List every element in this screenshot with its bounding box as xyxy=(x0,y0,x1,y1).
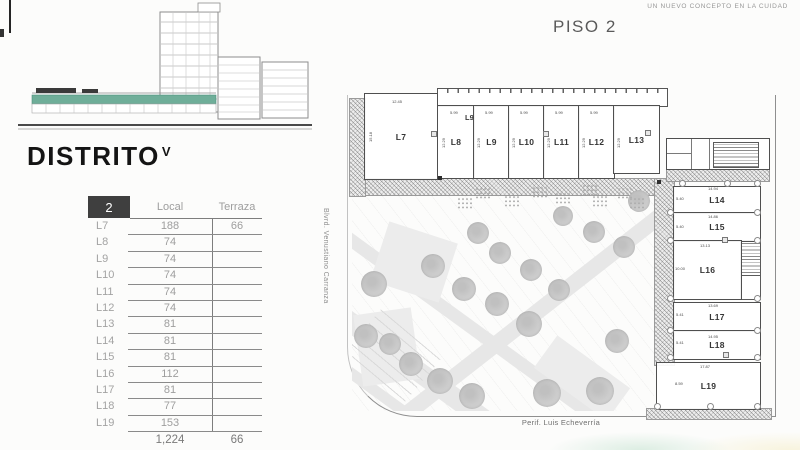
dim-label: 14.95 xyxy=(708,334,718,339)
dim-label: 5.99 xyxy=(590,110,598,115)
row-label: L19 xyxy=(96,416,128,431)
row-local: 74 xyxy=(128,235,212,250)
tree xyxy=(467,222,489,244)
table-rows: L718866L874L974L1074L1174L1274L1381L1481… xyxy=(88,219,262,432)
row-label: L14 xyxy=(96,334,128,349)
fixture-box xyxy=(723,352,729,358)
table-row: L16112 xyxy=(88,367,262,383)
column-marker xyxy=(667,354,674,361)
dim-label: 12.29 xyxy=(511,138,516,148)
tree xyxy=(605,329,629,353)
row-local: 74 xyxy=(128,301,212,316)
walkway xyxy=(364,178,658,196)
dim-label: 12.29 xyxy=(616,138,621,148)
dim-label: 5.99 xyxy=(555,110,563,115)
floor-title: PISO 2 xyxy=(553,17,617,37)
row-label: L9 xyxy=(96,252,128,267)
cafe-table-cluster xyxy=(504,195,520,208)
brand-logo: DISTRITOV xyxy=(27,141,171,172)
row-label: L7 xyxy=(96,219,128,234)
cafe-table-cluster xyxy=(457,197,473,210)
dim-label: 8.59 xyxy=(675,381,683,386)
table-row: L1174 xyxy=(88,285,262,301)
dim-label: 15.18 xyxy=(368,132,373,142)
tree xyxy=(427,368,453,394)
column-marker xyxy=(679,180,686,187)
total-terraza: 66 xyxy=(212,434,262,446)
table-row: L1074 xyxy=(88,268,262,284)
building-elevation xyxy=(0,0,320,135)
dim-label: 5.99 xyxy=(485,110,493,115)
fixture-box xyxy=(543,131,549,137)
dim-label: 5.40 xyxy=(676,196,684,201)
row-local: 81 xyxy=(128,383,212,398)
column-marker xyxy=(667,209,674,216)
column-block xyxy=(657,180,661,184)
tree xyxy=(586,377,614,405)
tree xyxy=(613,236,635,258)
street-label-left: Blvrd. Venustiano Carranza xyxy=(322,208,329,304)
room-L7: L7 xyxy=(364,93,438,180)
stairs xyxy=(740,240,761,277)
dim-label: 12.29 xyxy=(441,138,446,148)
tree xyxy=(516,311,542,337)
stairs xyxy=(713,142,759,168)
row-local: 81 xyxy=(128,334,212,349)
tree xyxy=(553,206,573,226)
tree xyxy=(548,279,570,301)
column-marker xyxy=(724,180,731,187)
walkway xyxy=(654,178,675,366)
tree xyxy=(520,259,542,281)
accent-band xyxy=(32,95,216,104)
row-local: 74 xyxy=(128,252,212,267)
core-wall xyxy=(667,153,691,154)
service-core xyxy=(666,138,770,170)
column-marker xyxy=(707,403,714,410)
core-wall xyxy=(709,139,710,169)
column-marker xyxy=(654,403,661,410)
row-local: 74 xyxy=(128,285,212,300)
table-row: L19153 xyxy=(88,416,262,432)
row-label: L17 xyxy=(96,383,128,398)
fixture-box xyxy=(722,237,728,243)
row-local: 188 xyxy=(128,219,212,234)
row-local: 81 xyxy=(128,350,212,365)
tree xyxy=(399,352,423,376)
table-row: L974 xyxy=(88,252,262,268)
dim-label: 13.13 xyxy=(700,243,710,248)
row-local: 153 xyxy=(128,416,212,431)
column-marker xyxy=(754,209,761,216)
column-marker xyxy=(667,295,674,302)
table-row: L1877 xyxy=(88,399,262,415)
dim-label: 17.87 xyxy=(700,364,710,369)
table-row: L874 xyxy=(88,235,262,251)
tagline: UN NUEVO CONCEPTO EN LA CUIDAD xyxy=(647,3,788,10)
table-row: L1381 xyxy=(88,317,262,333)
tree xyxy=(379,333,401,355)
dim-label: 14.94 xyxy=(708,186,718,191)
row-local: 77 xyxy=(128,399,212,414)
column-marker xyxy=(667,237,674,244)
tree xyxy=(354,324,378,348)
column-block xyxy=(438,176,442,180)
cafe-table-cluster xyxy=(617,187,633,200)
column-header-terraza: Terraza xyxy=(212,199,262,215)
fixture-box xyxy=(645,130,651,136)
column-marker xyxy=(754,354,761,361)
dim-label: 12.45 xyxy=(392,99,402,104)
tree xyxy=(489,242,511,264)
column-marker xyxy=(754,237,761,244)
dim-label: 5.41 xyxy=(676,312,684,317)
row-local: 74 xyxy=(128,268,212,283)
row-label: L13 xyxy=(96,317,128,332)
tree xyxy=(361,271,387,297)
street-label-bottom: Perif. Luis Echeverría xyxy=(455,418,667,427)
tree xyxy=(485,292,509,316)
row-label: L16 xyxy=(96,367,128,382)
row-terraza: 66 xyxy=(212,219,262,234)
row-label: L18 xyxy=(96,399,128,414)
tree xyxy=(459,383,485,409)
tree xyxy=(421,254,445,278)
cafe-table-cluster xyxy=(555,192,571,205)
tree xyxy=(452,277,476,301)
dim-label: 10.00 xyxy=(675,266,685,271)
brand-sup: V xyxy=(162,144,171,159)
dim-label: 5.40 xyxy=(676,224,684,229)
areas-table: 2 Local Terraza L718866L874L974L1074L117… xyxy=(88,196,262,448)
row-label: L15 xyxy=(96,350,128,365)
row-label: L12 xyxy=(96,301,128,316)
column-marker xyxy=(754,180,761,187)
row-label: L11 xyxy=(96,285,128,300)
core-wall xyxy=(691,139,692,169)
dim-label: 13.69 xyxy=(708,303,718,308)
row-label: L8 xyxy=(96,235,128,250)
column-marker xyxy=(754,295,761,302)
brand-name: DISTRITO xyxy=(27,141,160,171)
column-marker xyxy=(667,327,674,334)
tree xyxy=(583,221,605,243)
dim-label: 5.99 xyxy=(520,110,528,115)
table-row: L1481 xyxy=(88,334,262,350)
fixture-box xyxy=(431,131,437,137)
column-marker xyxy=(754,403,761,410)
table-row: L1274 xyxy=(88,301,262,317)
dim-label: 12.29 xyxy=(476,138,481,148)
cafe-table-cluster xyxy=(532,186,548,199)
dim-label: 12.29 xyxy=(581,138,586,148)
dim-label: 14.86 xyxy=(708,214,718,219)
cafe-table-cluster xyxy=(582,184,598,197)
column-marker xyxy=(754,327,761,334)
floor-badge: 2 xyxy=(88,196,130,218)
cafe-table-cluster xyxy=(475,187,491,200)
column-header-local: Local xyxy=(128,199,212,215)
dim-label: 12.29 xyxy=(546,138,551,148)
row-local: 112 xyxy=(128,367,212,382)
row-local: 81 xyxy=(128,317,212,332)
dim-label: 5.99 xyxy=(450,110,458,115)
table-row: L718866 xyxy=(88,219,262,235)
tree xyxy=(533,379,561,407)
table-row: L1581 xyxy=(88,350,262,366)
row-rule xyxy=(128,431,262,432)
total-local: 1,224 xyxy=(128,434,212,446)
dim-label: 5.41 xyxy=(676,340,684,345)
row-label: L10 xyxy=(96,268,128,283)
stray-room-label: L9 xyxy=(465,113,474,122)
table-row: L1781 xyxy=(88,383,262,399)
